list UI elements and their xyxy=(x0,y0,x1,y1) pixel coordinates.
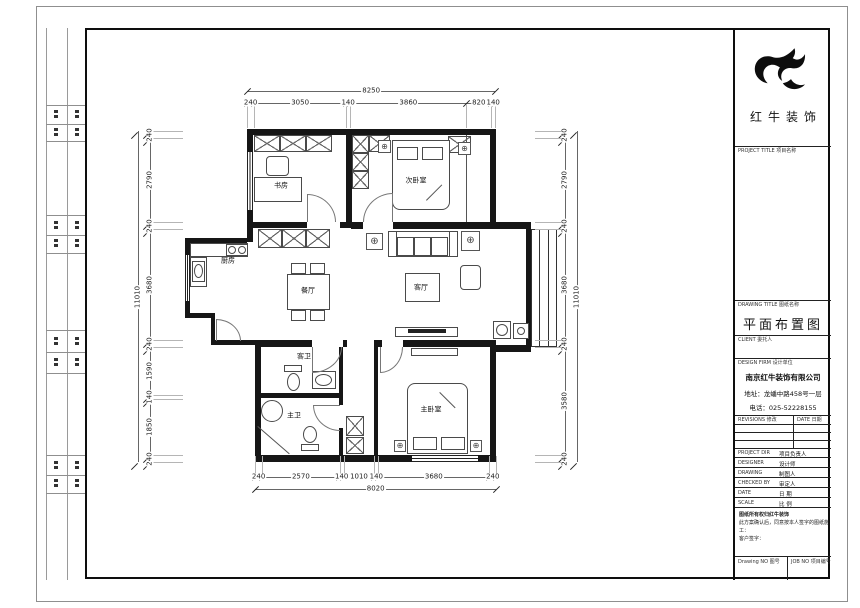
fold-mark xyxy=(75,110,79,118)
sofa-cushion xyxy=(431,237,448,256)
bay-window xyxy=(531,229,557,347)
fold-mark xyxy=(75,479,79,487)
dim-extension-line xyxy=(151,138,183,139)
dim-label: 3680 xyxy=(562,275,569,295)
dining-chair xyxy=(310,263,325,274)
toilet-bowl xyxy=(303,426,317,443)
dim-label: 240 xyxy=(562,127,569,142)
wall xyxy=(496,222,531,229)
wall xyxy=(343,340,347,347)
dim-extension-line xyxy=(350,104,351,128)
wash-basin xyxy=(315,374,332,386)
dim-overall-label: 8250 xyxy=(361,88,381,95)
dim-extension-line xyxy=(491,104,492,128)
info-row: DRAWING 制图人 xyxy=(735,468,831,478)
fold-mark-group xyxy=(46,215,85,254)
title-block: 红牛装饰 PROJECT TITLE 项目名称 DRAWING TITLE 图纸… xyxy=(733,28,831,580)
cabinet-cell xyxy=(306,229,330,248)
dim-label: 240 xyxy=(562,336,569,351)
dim-label: 140 xyxy=(147,390,154,405)
dim-label: 1010 xyxy=(349,474,369,481)
dim-label: 140 xyxy=(369,474,384,481)
divider xyxy=(735,556,831,557)
closet-cell xyxy=(254,135,280,152)
dim-extension-line xyxy=(495,104,496,128)
wall xyxy=(403,340,496,347)
dining-chair xyxy=(310,310,325,321)
pillow xyxy=(413,437,437,450)
room-label-study: 书房 xyxy=(274,183,288,190)
info-row-label-en: DESIGNER xyxy=(738,460,764,466)
dim-overall-label: 11010 xyxy=(135,285,142,309)
revisions-column-divider xyxy=(793,415,794,448)
fold-mark xyxy=(75,221,79,229)
dim-label: 1590 xyxy=(147,361,154,381)
dim-label: 2790 xyxy=(562,170,569,190)
window xyxy=(247,152,253,210)
dim-label: 240 xyxy=(147,127,154,142)
dim-label: 3860 xyxy=(398,100,418,107)
info-row-label-zh: 日 期 xyxy=(779,490,792,498)
fold-mark xyxy=(54,358,58,366)
brand-name: 红牛装饰 xyxy=(735,108,831,125)
closet-cell xyxy=(280,135,306,152)
wall xyxy=(247,222,307,228)
dim-label: 3050 xyxy=(290,100,310,107)
dim-extension-line xyxy=(151,462,183,463)
lamp-glyph: ⊕ xyxy=(370,237,378,247)
fold-mark-divider xyxy=(46,352,85,353)
burner xyxy=(228,246,236,254)
dim-label: 2790 xyxy=(147,170,154,190)
closet-cell xyxy=(346,416,364,436)
dim-overall-label: 11010 xyxy=(574,285,581,309)
info-row-label-en: SCALE xyxy=(738,500,754,506)
room-label-living: 客厅 xyxy=(414,285,428,292)
drawing-title-label: DRAWING TITLE 图纸名称 xyxy=(738,303,799,308)
info-row: CHECKED BY 审定人 xyxy=(735,478,831,488)
dim-label: 240 xyxy=(485,474,500,481)
project-title-label: PROJECT TITLE 项目名称 xyxy=(738,149,796,154)
info-row-label-en: PROJECT DIR xyxy=(738,450,770,456)
nightstand-lamp-icon: ⊕ xyxy=(458,142,471,155)
info-row-label-en: DRAWING xyxy=(738,470,762,476)
revisions-label: REVISIONS 修改 xyxy=(738,418,777,423)
burner xyxy=(238,246,246,254)
pedestal-basin xyxy=(261,400,283,422)
dim-line xyxy=(247,103,495,104)
tv xyxy=(408,329,446,333)
pillow xyxy=(441,437,465,450)
fold-mark xyxy=(54,239,58,247)
drawing-frame xyxy=(85,28,830,579)
toilet-tank xyxy=(301,444,319,451)
dim-label: 240 xyxy=(562,451,569,466)
divider xyxy=(735,415,831,416)
dim-label: 240 xyxy=(147,451,154,466)
wall xyxy=(351,222,363,229)
divider xyxy=(735,432,831,433)
fold-mark xyxy=(54,128,58,136)
chair xyxy=(266,156,289,176)
bottom-column-divider xyxy=(787,556,788,580)
dim-label: 140 xyxy=(340,100,355,107)
fold-mark xyxy=(54,461,58,469)
dining-chair xyxy=(291,310,306,321)
dim-extension-line xyxy=(151,455,183,456)
lamp-glyph: ⊕ xyxy=(381,143,388,151)
closet-cell xyxy=(352,135,369,153)
sofa-arm xyxy=(449,231,458,257)
client-label: CLIENT 委托人 xyxy=(738,338,772,343)
wall xyxy=(255,455,412,462)
fold-mark-group xyxy=(46,330,85,374)
nightstand-lamp-icon: ⊕ xyxy=(378,140,391,153)
dim-extension-line xyxy=(151,229,183,230)
sofa-cushion xyxy=(397,237,414,256)
fold-mark xyxy=(75,239,79,247)
cabinet-cell xyxy=(282,229,306,248)
dim-label: 140 xyxy=(486,100,501,107)
wall xyxy=(393,222,496,229)
dim-label: 3680 xyxy=(424,474,444,481)
dining-chair xyxy=(291,263,306,274)
construction-note: 此方案确认后，同意按本人签字的图纸施工： xyxy=(739,520,829,535)
closet-cell xyxy=(352,171,369,189)
side-table-lamp-icon: ⊕ xyxy=(461,231,480,251)
drawing-sheet: ⊕ ⊕ ⊕ ⊕ ⊕ ⊕ 书房 次卧室 厨房 餐厅 客厅 客卫 主卫 主 xyxy=(0,0,860,608)
wall xyxy=(374,340,382,347)
info-row: PROJECT DIR 项目负责人 xyxy=(735,448,831,458)
dim-extension-line xyxy=(151,222,183,223)
fold-mark xyxy=(54,479,58,487)
dim-label: 240 xyxy=(147,336,154,351)
info-row-label-en: DATE xyxy=(738,490,751,496)
info-row-label-zh: 审定人 xyxy=(779,480,796,488)
wall xyxy=(490,129,496,229)
dim-label: 3580 xyxy=(562,391,569,411)
dim-extension-line xyxy=(151,340,183,341)
info-row-label-zh: 制图人 xyxy=(779,470,796,478)
info-row: DATE 日 期 xyxy=(735,488,831,498)
divider xyxy=(735,300,831,301)
dim-overall-label: 8020 xyxy=(366,486,386,493)
lamp-glyph: ⊕ xyxy=(473,442,480,450)
ceiling-lamp-icon: ⊕ xyxy=(366,233,383,250)
fold-mark xyxy=(54,221,58,229)
closet-cell xyxy=(306,135,332,152)
divider xyxy=(735,440,831,441)
divider xyxy=(735,358,831,359)
info-row-label-zh: 比 例 xyxy=(779,500,792,508)
dim-extension-line xyxy=(151,399,183,400)
dim-label: 240 xyxy=(562,218,569,233)
wall xyxy=(491,345,531,352)
info-row-label-zh: 设计师 xyxy=(779,460,796,468)
fold-mark xyxy=(75,128,79,136)
closet-cell xyxy=(352,153,369,171)
info-row-label-zh: 项目负责人 xyxy=(779,450,807,458)
nightstand-lamp-icon: ⊕ xyxy=(470,440,482,452)
fold-mark-group xyxy=(46,105,85,142)
design-firm-label: DESIGN FIRM 设计单位 xyxy=(738,361,793,366)
fold-mark xyxy=(75,337,79,345)
room-label-bedroom2: 次卧室 xyxy=(406,178,427,185)
lamp-glyph: ⊕ xyxy=(397,442,404,450)
fold-mark xyxy=(54,337,58,345)
dim-label: 3680 xyxy=(147,275,154,295)
dim-label: 140 xyxy=(334,474,349,481)
lamp-glyph: ⊕ xyxy=(466,236,474,246)
dim-extension-line xyxy=(466,104,467,128)
dim-extension-line xyxy=(151,131,183,132)
fold-mark xyxy=(75,461,79,469)
wall xyxy=(490,345,496,462)
wall xyxy=(339,428,343,455)
dim-label: 820 xyxy=(471,100,486,107)
wall xyxy=(478,455,496,462)
dim-extension-line xyxy=(254,104,255,128)
wall xyxy=(255,393,339,398)
fold-mark-divider xyxy=(46,124,85,125)
toilet-bowl xyxy=(287,373,300,391)
client-signature-label: 客户签字： xyxy=(739,536,829,544)
firm-phone: 电话：025-52228155 xyxy=(735,402,831,412)
room-label-bath2: 主卫 xyxy=(287,413,301,420)
dim-extension-line xyxy=(151,395,183,396)
sink-basin xyxy=(194,264,203,278)
dim-extension-line xyxy=(247,104,248,128)
pillow xyxy=(422,147,443,160)
divider xyxy=(735,335,831,336)
lamp-glyph: ⊕ xyxy=(461,145,468,153)
fold-mark xyxy=(54,110,58,118)
firm-name: 南京红牛装饰有限公司 xyxy=(735,372,831,383)
info-row: SCALE 比 例 xyxy=(735,498,831,508)
nightstand-lamp-icon: ⊕ xyxy=(394,440,406,452)
fold-mark-divider xyxy=(46,235,85,236)
room-label-master: 主卧室 xyxy=(421,407,442,414)
revisions-date-label: DATE 日期 xyxy=(797,418,822,423)
tv-board xyxy=(411,348,458,356)
brand-logo-icon xyxy=(749,42,819,100)
wall xyxy=(374,347,378,455)
divider xyxy=(735,424,831,425)
wall xyxy=(255,340,312,347)
room-label-bath1: 客卫 xyxy=(297,354,311,361)
dim-extension-line xyxy=(151,347,183,348)
copyright-note: 图纸所有权归红牛装饰 xyxy=(739,512,829,520)
sofa-arm xyxy=(388,231,397,257)
armchair xyxy=(460,265,481,290)
room-label-kitchen: 厨房 xyxy=(221,258,235,265)
drawing-title: 平面布置图 xyxy=(735,314,831,333)
dim-label: 240 xyxy=(251,474,266,481)
info-row: DESIGNER 设计师 xyxy=(735,458,831,468)
firm-address: 地址：龙蟠中路458号一层 xyxy=(735,388,831,398)
fold-mark-group xyxy=(46,455,85,494)
room-label-dining: 餐厅 xyxy=(301,288,315,295)
info-row-label-en: CHECKED BY xyxy=(738,480,770,486)
fold-mark-divider xyxy=(46,475,85,476)
dim-label: 2570 xyxy=(291,474,311,481)
job-no-label: JOB NO 项目编号 xyxy=(791,560,831,565)
fold-mark xyxy=(75,358,79,366)
laundry-basin xyxy=(517,327,525,335)
divider xyxy=(735,146,831,147)
dim-label: 240 xyxy=(243,100,258,107)
pillow xyxy=(397,147,418,160)
washer-drum xyxy=(496,324,508,336)
dim-extension-line xyxy=(346,104,347,128)
sofa-cushion xyxy=(414,237,431,256)
toilet-tank xyxy=(284,365,302,372)
dim-label: 240 xyxy=(147,218,154,233)
window xyxy=(412,455,478,462)
dim-label: 1850 xyxy=(147,417,154,437)
wall xyxy=(255,347,261,455)
cabinet-cell xyxy=(258,229,282,248)
closet-cell xyxy=(346,437,364,454)
drawing-no-label: Drawing NO 图号 xyxy=(738,560,780,565)
